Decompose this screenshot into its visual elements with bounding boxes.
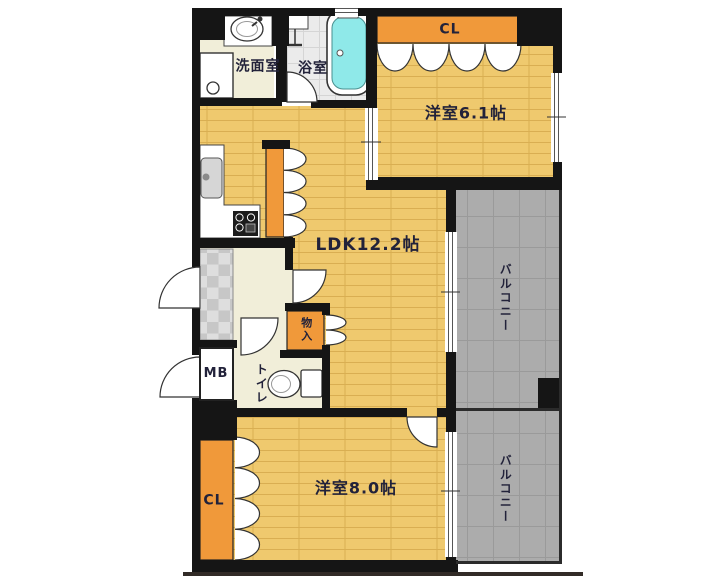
label-closet-bottom: CL: [203, 494, 224, 509]
toilet-tank: [301, 370, 322, 397]
kitchen-stove: [233, 211, 258, 236]
label-balcony-upper: バルコニー: [499, 263, 512, 333]
pantry-box: [266, 148, 284, 237]
label-bedroom1: 洋室6.1帖: [425, 106, 507, 123]
washer-drain-icon: [207, 82, 219, 94]
bottom-border-line: [183, 572, 583, 576]
sink-faucet-icon: [203, 174, 210, 181]
toilet-bowl: [268, 371, 300, 398]
floorplan-page: 洗面室 浴室 CL 洋室6.1帖 LDK12.2帖 バルコニー バルコニー 物入…: [0, 0, 720, 576]
basin-faucet-icon: [258, 17, 263, 22]
label-meter-box: MB: [204, 367, 229, 381]
label-bedroom2: 洋室8.0帖: [315, 481, 397, 498]
label-toilet: トイレ: [255, 363, 268, 405]
mb-door-arc: [160, 357, 200, 397]
label-balcony-lower: バルコニー: [499, 454, 512, 524]
toilet-fixture: [268, 370, 322, 398]
label-storage: 物入: [300, 317, 312, 343]
label-bathroom: 浴室: [298, 62, 328, 77]
bathtub: [327, 9, 371, 95]
entrance-tiles: [200, 249, 233, 340]
label-closet-top: CL: [439, 23, 460, 38]
label-ldk: LDK12.2帖: [315, 237, 420, 255]
bathroom-window: [335, 5, 358, 17]
front-door-arc: [159, 267, 200, 308]
balcony-pillar: [538, 378, 562, 411]
label-washroom: 洗面室: [236, 60, 281, 75]
